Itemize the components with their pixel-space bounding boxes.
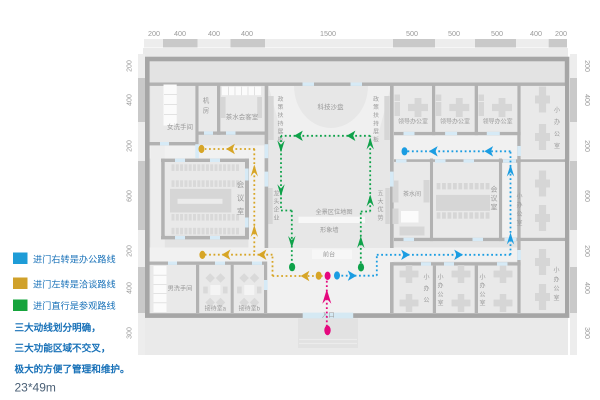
svg-text:200: 200	[583, 245, 590, 257]
svg-text:1500: 1500	[320, 29, 336, 38]
svg-text:200: 200	[148, 29, 160, 38]
svg-text:400: 400	[208, 29, 220, 38]
svg-text:500: 500	[448, 29, 460, 38]
svg-text:领导办公室: 领导办公室	[398, 118, 428, 126]
svg-text:200: 200	[127, 140, 134, 152]
svg-text:茶水间: 茶水间	[403, 190, 421, 198]
svg-text:400: 400	[241, 29, 253, 38]
svg-text:接待室b: 接待室b	[239, 305, 261, 313]
svg-text:前台: 前台	[323, 251, 335, 259]
svg-text:400: 400	[583, 282, 590, 294]
svg-text:男洗手间: 男洗手间	[168, 285, 193, 293]
svg-text:科技沙盘: 科技沙盘	[318, 102, 345, 111]
svg-text:200: 200	[555, 29, 567, 38]
svg-text:领导办公室: 领导办公室	[440, 118, 470, 126]
svg-text:200: 200	[127, 60, 134, 72]
svg-text:300: 300	[583, 327, 590, 339]
svg-text:200: 200	[583, 60, 590, 72]
svg-text:300: 300	[127, 327, 134, 339]
svg-text:茶水会客室: 茶水会客室	[226, 112, 259, 121]
svg-text:极大的方便了管理和维护。: 极大的方便了管理和维护。	[15, 364, 130, 376]
svg-text:会议室: 会议室	[237, 179, 245, 216]
svg-text:200: 200	[583, 140, 590, 152]
svg-text:600: 600	[583, 190, 590, 202]
svg-text:200: 200	[127, 245, 134, 257]
svg-text:三大功能区域不交叉，: 三大功能区域不交叉，	[15, 343, 111, 355]
svg-text:形象墙: 形象墙	[320, 226, 339, 234]
svg-text:400: 400	[127, 94, 134, 106]
svg-text:接待室a: 接待室a	[205, 305, 227, 313]
svg-text:进门右转是办公路线: 进门右转是办公路线	[33, 254, 116, 265]
svg-text:全景区位地图: 全景区位地图	[315, 208, 352, 216]
svg-text:进门直行是参观路线: 进门直行是参观路线	[33, 300, 116, 311]
svg-text:女洗手间: 女洗手间	[167, 122, 193, 131]
svg-text:23*49m: 23*49m	[15, 381, 56, 395]
svg-text:小办公: 小办公	[423, 273, 429, 304]
svg-text:三大动线划分明确，: 三大动线划分明确，	[15, 322, 101, 334]
svg-text:500: 500	[406, 29, 418, 38]
svg-text:入口: 入口	[322, 311, 335, 319]
svg-text:600: 600	[127, 190, 134, 202]
svg-text:400: 400	[127, 282, 134, 294]
svg-text:400: 400	[174, 29, 186, 38]
svg-text:进门左转是洽谈路线: 进门左转是洽谈路线	[33, 279, 116, 290]
svg-text:400: 400	[530, 29, 542, 38]
svg-text:会议室: 会议室	[491, 185, 498, 212]
svg-text:500: 500	[491, 29, 503, 38]
svg-text:400: 400	[583, 94, 590, 106]
svg-text:领导办公室: 领导办公室	[483, 118, 513, 126]
